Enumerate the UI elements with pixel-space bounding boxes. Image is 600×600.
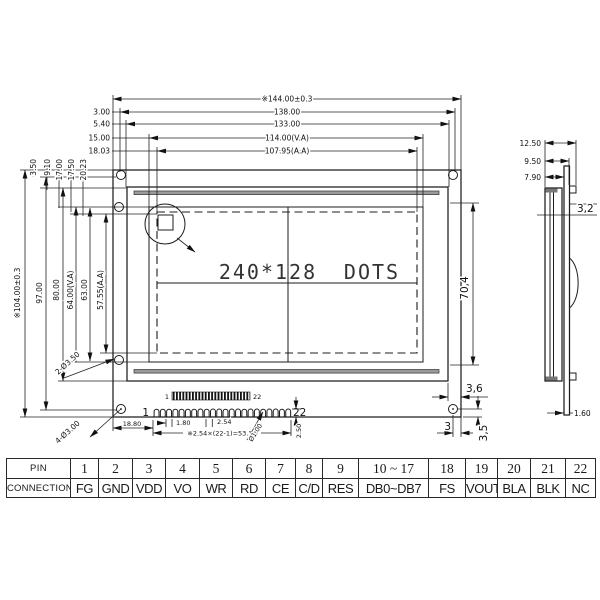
pin-number-cell: 10 ~ 17 (359, 459, 429, 479)
dim-total-width: ※144.00±0.3 (262, 95, 313, 104)
dim-width-aa: 107.95(A.A) (265, 147, 310, 156)
pin-number-cell: 5 (200, 459, 233, 479)
pin-number-cell: 22 (566, 459, 596, 479)
side-body-cap-bottom (546, 377, 558, 381)
pin-number-cell: 2 (99, 459, 133, 479)
table-row-pin: PIN 12345678910 ~ 171819202122 (7, 459, 596, 479)
pin-number-cell: 8 (296, 459, 323, 479)
side-backlight-bulge (570, 258, 579, 308)
resolution-label: 240*128 (219, 260, 317, 284)
pin-connection-cell: BLK (531, 479, 566, 498)
offset-9.10: 9.10 (43, 159, 52, 176)
display-window (149, 207, 423, 362)
pin-number-cell: 19 (466, 459, 498, 479)
dim-height-aa: 57.55(A.A) (96, 270, 105, 310)
dim-pitch: 2.54 (217, 418, 231, 426)
lcd-module-drawing: 240*128 DOTS ※144. (0, 0, 600, 600)
dim-pin-offset: 18.80 (123, 420, 142, 428)
dim-gap-3-6: 3,6 (466, 383, 483, 395)
dim-pin-width: 1.80 (176, 419, 190, 427)
pin-number-cell: 6 (233, 459, 266, 479)
pin-number-cell: 3 (133, 459, 166, 479)
side-tab-bottom (570, 373, 577, 380)
side-tab-top (570, 186, 577, 193)
resolution-units-label: DOTS (344, 260, 400, 284)
pin-number-cell: 9 (323, 459, 359, 479)
dim-window-height: 70,4 (459, 276, 471, 300)
dim-pcb-thickness: 1.60 (574, 409, 591, 418)
mounting-hole-top-left (117, 171, 126, 180)
dim-pin-height: 2.50 (295, 424, 303, 438)
pin-connection-cell: RD (233, 479, 266, 498)
pin-connection-cell: VDD (133, 479, 166, 498)
offset-3.00: 3.00 (93, 108, 110, 117)
dim-step: 3,2 (577, 203, 594, 215)
connection-row-label: CONNECTION (7, 479, 71, 498)
dim-height-63: 63.00 (80, 279, 89, 301)
detail-dot-square (158, 215, 173, 230)
dim-hole-x: 3 (444, 421, 451, 433)
side-body-cap-top (546, 189, 558, 193)
pin1-label: 1 (142, 407, 149, 419)
pin-number-cell: 21 (531, 459, 566, 479)
detail-leader-arrow (177, 238, 195, 252)
pin-connection-cell: WR (200, 479, 233, 498)
pin-connection-cell: VO (166, 479, 200, 498)
bezel-bottom-slot (134, 370, 439, 374)
technical-drawing-canvas: 240*128 DOTS ※144. (0, 0, 600, 600)
offset-17.00: 17.00 (55, 159, 64, 181)
detail-circle (145, 204, 185, 244)
dim-total-height: ※104.00±0.3 (13, 267, 22, 318)
pin-number-cell: 18 (429, 459, 466, 479)
bezel-top-slot (134, 191, 439, 195)
pin-connection-cell: C/D (296, 479, 323, 498)
offset-5.40: 5.40 (93, 120, 110, 129)
dim-pin-total: ※2.54×(22-1)=53.34 (187, 430, 256, 438)
pin-number-cell: 4 (166, 459, 200, 479)
pin-row-label: PIN (7, 459, 71, 479)
dim-width-133: 133.00 (274, 120, 300, 129)
strip-pin22-label: 22 (253, 393, 261, 401)
dim-thickness-mid: 9.50 (524, 157, 541, 166)
table-row-connection: CONNECTION FGGNDVDDVOWRRDCEC/DRESDB0~DB7… (7, 479, 596, 498)
pin-connection-cell: FG (71, 479, 99, 498)
pin-connection-cell: DB0~DB7 (359, 479, 429, 498)
pin-connection-cell: RES (323, 479, 359, 498)
dim-height-80: 80.00 (52, 279, 61, 301)
side-tab-hole-lower (115, 356, 124, 365)
pin-number-cell: 7 (266, 459, 296, 479)
pin-connection-table: PIN 12345678910 ~ 171819202122 CONNECTIO… (6, 458, 596, 498)
pin-connection-cell: VOUT (466, 479, 498, 498)
pin-connection-cell: BLA (498, 479, 531, 498)
side-view: 12.50 9.50 7.90 3,2 1.60 (520, 139, 597, 418)
connector-strip (172, 392, 250, 400)
pin-row (154, 409, 291, 417)
pin-number-cell: 20 (498, 459, 531, 479)
strip-pin1-label: 1 (165, 393, 169, 401)
dim-height-va: 64.00(V.A) (66, 270, 75, 309)
pin-connection-cell: NC (566, 479, 596, 498)
hole-center-dot (452, 408, 454, 410)
dim-thickness-total: 12.50 (520, 139, 542, 148)
dim-hole-y: 3,5 (478, 425, 490, 442)
front-view: 240*128 DOTS (113, 170, 461, 417)
offset-17.50: 17.50 (67, 159, 76, 181)
pin-connection-cell: FS (429, 479, 466, 498)
dim-width-va: 114.00(V.A) (265, 134, 309, 143)
offset-18.03: 18.03 (89, 147, 111, 156)
mounting-hole-top-right (449, 171, 458, 180)
dimensions-left: ※104.00±0.3 97.00 80.00 64.00(V.A) 63.00… (13, 159, 157, 446)
hole-callout-corner: 4-Ø3.00 (53, 419, 82, 446)
offset-3.50: 3.50 (29, 159, 38, 176)
offset-15.00: 15.00 (89, 134, 111, 143)
offset-20.23: 20.23 (79, 159, 88, 181)
dim-width-138: 138.00 (274, 108, 300, 117)
side-pcb (564, 166, 570, 415)
dim-thickness-front: 7.90 (524, 173, 541, 182)
pin-connection-cell: CE (266, 479, 296, 498)
pin-connection-cell: GND (99, 479, 133, 498)
pin-number-cell: 1 (71, 459, 99, 479)
dim-height-97: 97.00 (35, 282, 44, 304)
